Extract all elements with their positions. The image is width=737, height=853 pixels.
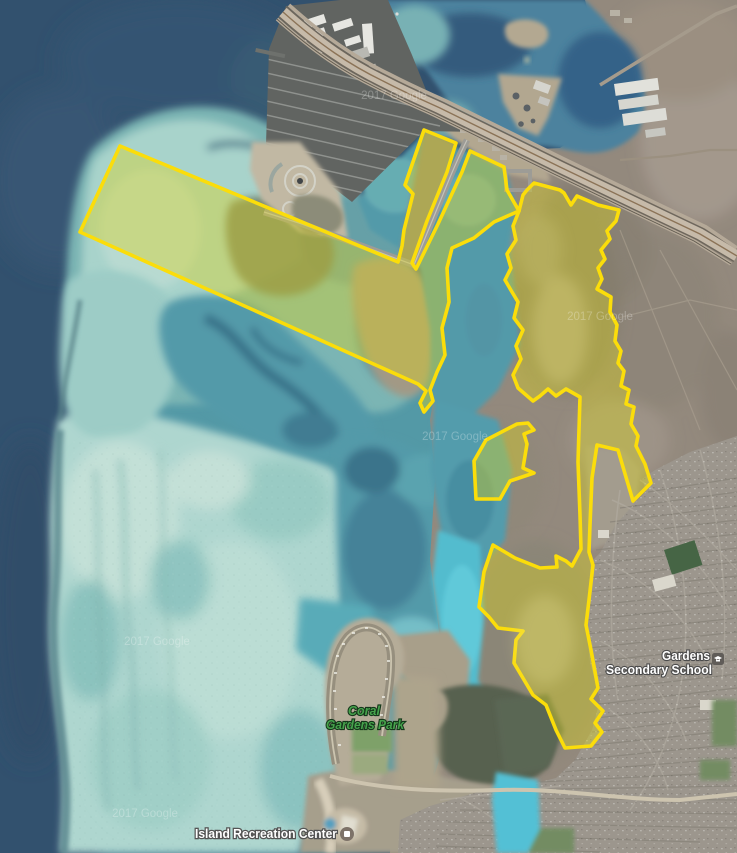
svg-text:Gardens Park: Gardens Park <box>326 718 405 732</box>
svg-text:2017 Google: 2017 Google <box>124 636 190 648</box>
svg-text:Gardens: Gardens <box>662 648 710 663</box>
svg-text:2017 Google: 2017 Google <box>361 90 427 102</box>
svg-text:Island Recreation Center: Island Recreation Center <box>195 827 337 841</box>
svg-text:Secondary School: Secondary School <box>606 662 712 677</box>
svg-text:Coral: Coral <box>348 704 381 718</box>
svg-text:2017 Google: 2017 Google <box>422 431 488 443</box>
svg-text:2017 Google: 2017 Google <box>112 808 178 820</box>
svg-text:2017 Google: 2017 Google <box>567 311 633 323</box>
